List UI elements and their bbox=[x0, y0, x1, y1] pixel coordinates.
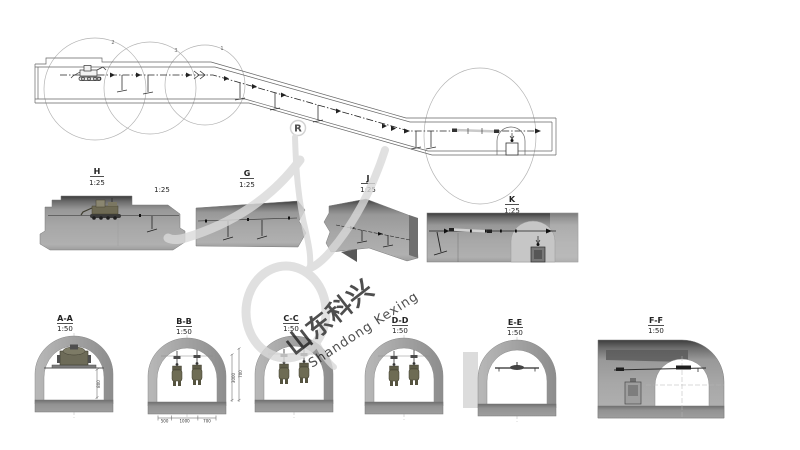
svg-text:500: 500 bbox=[161, 419, 169, 424]
section-label: C-C bbox=[283, 314, 298, 323]
section-scale: 1:25 bbox=[239, 181, 255, 189]
section-label: E-E bbox=[508, 318, 522, 327]
section-label: B-B bbox=[176, 317, 192, 326]
section-label: K bbox=[509, 195, 516, 204]
section-label: H bbox=[94, 167, 101, 176]
section-scale-extra: 1:25 bbox=[154, 186, 170, 194]
drawing-sheet: 2 3 1 bbox=[0, 0, 800, 450]
section-scale: 1:50 bbox=[392, 327, 408, 335]
cable-run bbox=[60, 71, 541, 155]
section-scale: 1:50 bbox=[176, 328, 192, 336]
svg-text:800: 800 bbox=[96, 380, 101, 388]
section-scale: 1:50 bbox=[57, 325, 73, 333]
cross-section-ff: F-F 1:50 bbox=[598, 316, 724, 418]
svg-text:1000: 1000 bbox=[180, 419, 191, 424]
callout-label: 1 bbox=[220, 46, 223, 52]
section-scale: 1:50 bbox=[648, 327, 664, 335]
callout-label: 2 bbox=[111, 40, 114, 46]
leaky-cable-rod bbox=[452, 128, 499, 134]
detail-section-h: H 1:25 1:25 bbox=[40, 167, 185, 250]
svg-text:700: 700 bbox=[238, 370, 243, 378]
section-scale: 1:50 bbox=[507, 329, 523, 337]
cross-section-ee: E-E 1:50 bbox=[463, 318, 556, 422]
svg-text:R: R bbox=[294, 124, 302, 135]
hanging-device-icon bbox=[389, 351, 399, 386]
cabinet-icon bbox=[506, 143, 518, 155]
svg-text:700: 700 bbox=[203, 419, 211, 424]
registered-trademark-icon: R bbox=[291, 121, 306, 136]
cad-drawing: 2 3 1 bbox=[0, 0, 800, 450]
tunnel-ring bbox=[365, 335, 443, 420]
svg-text:3000: 3000 bbox=[231, 372, 236, 383]
cross-section-aa: A-A 1:50 800 bbox=[35, 314, 113, 418]
section-scale: 1:25 bbox=[89, 179, 105, 187]
cross-section-bb: B-B 1:50 3000 700 500 1000 700 bbox=[148, 317, 243, 424]
callout-label: 3 bbox=[174, 48, 177, 54]
section-label: F-F bbox=[649, 316, 663, 325]
hanging-device-icon bbox=[192, 350, 202, 385]
cabinet-icon bbox=[625, 378, 641, 404]
tunnel-ring bbox=[148, 335, 226, 420]
section-label: G bbox=[244, 169, 251, 178]
detail-section-k: K 1:25 bbox=[427, 195, 578, 262]
excavator-icon bbox=[71, 66, 106, 81]
hanging-device-icon bbox=[172, 351, 182, 386]
cross-sections: A-A 1:50 800 bbox=[35, 314, 724, 424]
cross-section-dd: D-D 1:50 bbox=[365, 316, 443, 420]
section-label: A-A bbox=[57, 314, 74, 323]
hanging-device-icon bbox=[409, 350, 419, 385]
tunnel-ring bbox=[478, 337, 556, 422]
